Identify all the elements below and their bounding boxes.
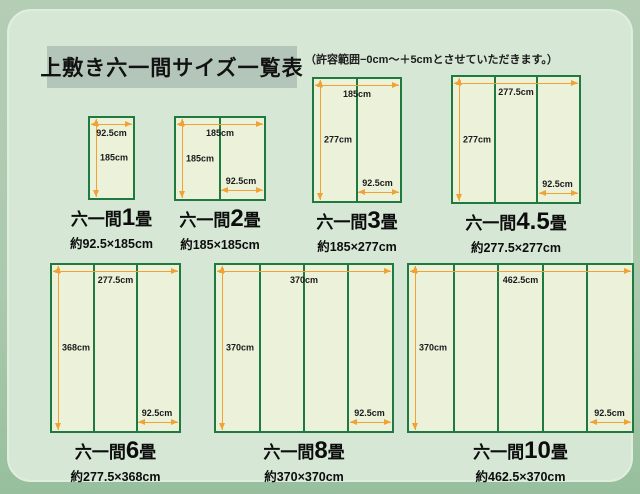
caption-dimensions: 約277.5×368cm [70,466,160,485]
width-dimension-arrow [53,271,178,272]
diagram-caption: 六一間6畳 約277.5×368cm [70,439,160,485]
caption-main: 六一間10畳 [473,439,568,465]
diagram-1jo: 92.5cm 185cm 六一間1畳 約92.5×185cm [88,116,135,200]
height-dimension-label: 370cm [226,344,254,353]
mat-divider [93,265,95,431]
height-dimension-label: 185cm [100,154,128,163]
column-width-label: 92.5cm [587,409,632,418]
caption-size-number: 8 [314,437,327,464]
caption-series: 六一間 [75,443,126,462]
height-dimension-arrow [222,266,223,430]
height-dimension-label: 185cm [186,154,214,163]
caption-dimensions: 約185×277cm [316,236,397,255]
diagram-8jo: 370cm 370cm 92.5cm 六一間8畳 約370×370cm [214,263,394,433]
caption-series: 六一間 [71,210,122,229]
caption-unit: 畳 [550,214,567,233]
column-width-arrow [590,422,631,423]
caption-series: 六一間 [465,214,516,233]
diagram-2jo: 185cm 185cm 92.5cm 六一間2畳 約185×185cm [174,116,266,201]
caption-main: 六一間3畳 [316,209,397,235]
diagram-4-5jo: 277.5cm 277cm 92.5cm 六一間4.5畳 約277.5×277c… [451,75,581,204]
caption-size-number: 10 [524,437,551,464]
caption-dimensions: 約462.5×370cm [473,466,568,485]
caption-size-number: 1 [122,204,135,231]
column-width-arrow [539,193,578,194]
column-width-arrow [358,192,399,193]
diagram-caption: 六一間3畳 約185×277cm [316,209,397,255]
column-width-label: 92.5cm [347,409,392,418]
caption-main: 六一間2畳 [179,207,260,233]
caption-unit: 畳 [135,210,152,229]
diagram-caption: 六一間8畳 約370×370cm [263,439,344,485]
width-dimension-arrow [315,85,399,86]
width-dimension-label: 370cm [216,276,392,285]
height-dimension-label: 370cm [419,344,447,353]
height-dimension-label: 277cm [463,135,491,144]
tolerance-note: （許容範囲−0cm～＋5cmとさせていただきます。） [305,51,558,67]
caption-unit: 畳 [244,211,261,230]
caption-size-number: 3 [367,207,380,234]
caption-dimensions: 約277.5×277cm [465,237,566,256]
tatami-outline: 277.5cm 277cm 92.5cm [451,75,581,204]
column-width-label: 92.5cm [218,177,264,186]
caption-main: 六一間1畳 [70,206,153,232]
height-dimension-label: 368cm [62,344,90,353]
caption-series: 六一間 [263,443,314,462]
diagram-caption: 六一間10畳 約462.5×370cm [473,439,568,485]
width-dimension-arrow [410,271,631,272]
diagram-3jo: 185cm 277cm 92.5cm 六一間3畳 約185×277cm [312,77,402,203]
column-width-label: 92.5cm [355,179,400,188]
mat-divider [453,265,455,431]
caption-series: 六一間 [179,211,230,230]
mat-divider [136,265,138,431]
width-dimension-label: 92.5cm [90,129,133,138]
column-width-label: 92.5cm [536,180,579,189]
caption-unit: 畳 [381,213,398,232]
caption-dimensions: 約370×370cm [263,466,344,485]
width-dimension-label: 185cm [176,129,264,138]
caption-dimensions: 約92.5×185cm [70,233,153,252]
caption-unit: 畳 [328,443,345,462]
diagram-10jo: 462.5cm 370cm 92.5cm 六一間10畳 約462.5×370cm [407,263,634,433]
column-width-label: 92.5cm [135,409,179,418]
mat-divider [497,265,499,431]
width-dimension-label: 185cm [314,90,400,99]
column-width-arrow [350,422,391,423]
caption-size-number: 4.5 [516,208,549,235]
height-dimension-label: 277cm [324,136,352,145]
width-dimension-label: 277.5cm [52,276,179,285]
caption-unit: 畳 [551,443,568,462]
title-box: 上敷き六一間サイズ一覧表 [47,46,297,88]
tatami-outline: 92.5cm 185cm [88,116,135,200]
mat-divider [542,265,544,431]
width-dimension-arrow [177,124,263,125]
diagram-caption: 六一間4.5畳 約277.5×277cm [465,210,566,256]
height-dimension-arrow [415,266,416,430]
caption-series: 六一間 [316,213,367,232]
tatami-outline: 185cm 185cm 92.5cm [174,116,266,201]
tatami-outline: 185cm 277cm 92.5cm [312,77,402,203]
width-dimension-arrow [454,83,578,84]
column-width-arrow [138,422,178,423]
caption-size-number: 2 [230,205,243,232]
width-dimension-label: 462.5cm [409,276,632,285]
tatami-outline: 462.5cm 370cm 92.5cm [407,263,634,433]
diagram-caption: 六一間1畳 約92.5×185cm [70,206,153,252]
mat-divider [259,265,261,431]
diagram-6jo: 277.5cm 368cm 92.5cm 六一間6畳 約277.5×368cm [50,263,181,433]
mat-divider [347,265,349,431]
caption-dimensions: 約185×185cm [179,234,260,253]
main-panel: 上敷き六一間サイズ一覧表 （許容範囲−0cm～＋5cmとさせていただきます。） … [7,9,633,482]
caption-main: 六一間6畳 [70,439,160,465]
mat-divider [303,265,305,431]
caption-size-number: 6 [126,437,139,464]
caption-main: 六一間8畳 [263,439,344,465]
diagram-caption: 六一間2畳 約185×185cm [179,207,260,253]
caption-series: 六一間 [473,443,524,462]
caption-main: 六一間4.5畳 [465,210,566,236]
width-dimension-arrow [217,271,391,272]
caption-unit: 畳 [139,443,156,462]
page-title: 上敷き六一間サイズ一覧表 [40,52,303,82]
tatami-outline: 277.5cm 368cm 92.5cm [50,263,181,433]
width-dimension-label: 277.5cm [453,88,579,97]
mat-divider [586,265,588,431]
height-dimension-arrow [58,266,59,430]
tatami-outline: 370cm 370cm 92.5cm [214,263,394,433]
column-width-arrow [221,190,263,191]
